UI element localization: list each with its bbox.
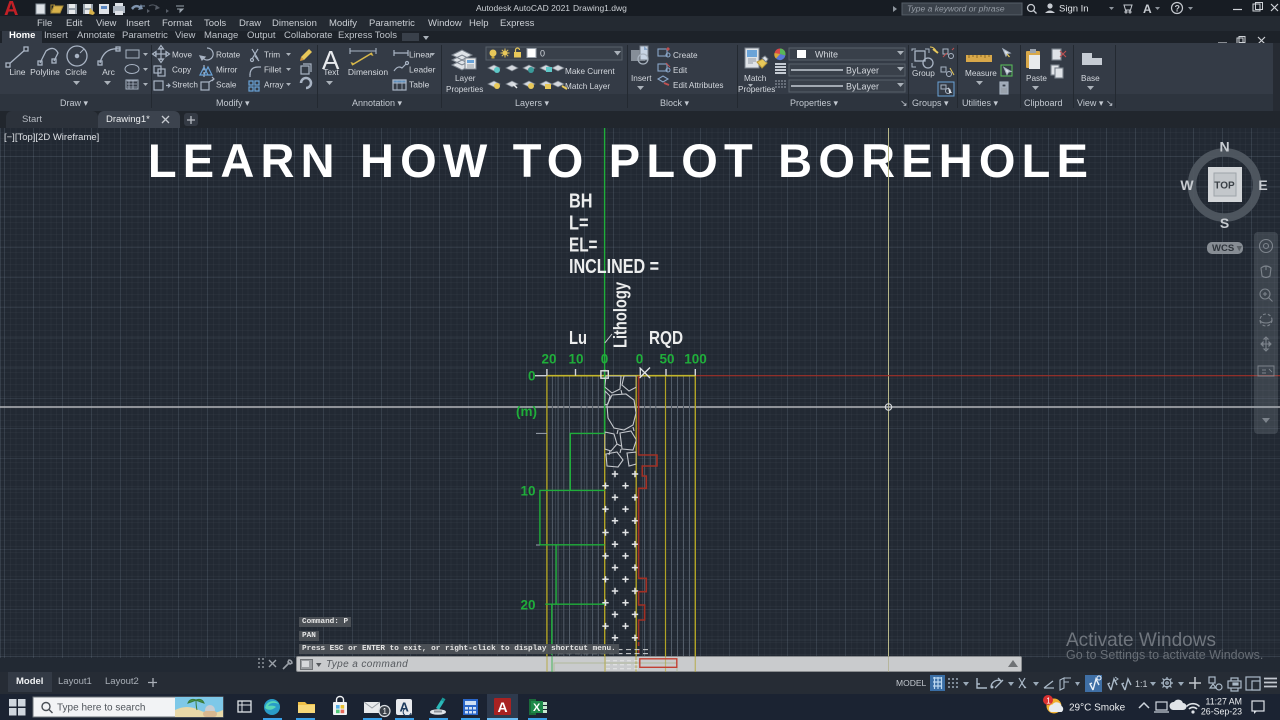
svg-text:ByLayer: ByLayer bbox=[846, 82, 879, 92]
svg-text:Insert: Insert bbox=[631, 74, 652, 83]
svg-text:Edit: Edit bbox=[673, 66, 688, 75]
svg-text:Move: Move bbox=[172, 51, 192, 60]
svg-text:Create: Create bbox=[673, 51, 698, 60]
svg-text:Copy: Copy bbox=[172, 66, 192, 75]
svg-text:Dimension: Dimension bbox=[348, 67, 388, 77]
svg-text:Base: Base bbox=[1081, 74, 1100, 83]
svg-text:Properties: Properties bbox=[446, 85, 483, 94]
svg-text:Arc: Arc bbox=[102, 67, 116, 77]
svg-text:Match Layer: Match Layer bbox=[565, 82, 610, 91]
svg-text:1: 1 bbox=[383, 707, 388, 716]
svg-text:Text: Text bbox=[323, 67, 339, 77]
svg-text:Rotate: Rotate bbox=[216, 51, 241, 60]
svg-text:Autodesk AutoCAD 2021: Autodesk AutoCAD 2021 bbox=[476, 3, 570, 13]
svg-text:Make Current: Make Current bbox=[565, 67, 615, 76]
svg-text:Paste: Paste bbox=[1026, 74, 1047, 83]
svg-text:0: 0 bbox=[540, 49, 545, 59]
svg-text:Trim: Trim bbox=[264, 51, 280, 60]
svg-text:1:1: 1:1 bbox=[1135, 679, 1148, 689]
svg-text:Match: Match bbox=[744, 74, 767, 83]
svg-text:Array: Array bbox=[264, 81, 284, 90]
svg-text:Edit Attributes: Edit Attributes bbox=[673, 81, 724, 90]
svg-text:Line: Line bbox=[9, 67, 25, 77]
svg-text:Scale: Scale bbox=[216, 81, 237, 90]
svg-text:White: White bbox=[815, 50, 838, 60]
svg-text:11:27 AM: 11:27 AM bbox=[1205, 697, 1242, 707]
svg-text:26-Sep-23: 26-Sep-23 bbox=[1201, 707, 1242, 717]
svg-text:Layer: Layer bbox=[455, 74, 476, 83]
svg-text:Circle: Circle bbox=[65, 67, 87, 77]
svg-text:Properties: Properties bbox=[738, 85, 775, 94]
svg-text:1: 1 bbox=[1046, 697, 1051, 706]
svg-text:Group: Group bbox=[912, 69, 935, 78]
svg-text:Leader: Leader bbox=[409, 65, 436, 75]
svg-text:Type a keyword or phrase: Type a keyword or phrase bbox=[907, 4, 1005, 14]
svg-text:Drawing1.dwg: Drawing1.dwg bbox=[573, 3, 627, 13]
svg-text:Mirror: Mirror bbox=[216, 66, 238, 75]
svg-text:Polyline: Polyline bbox=[30, 67, 60, 77]
svg-text:ByLayer: ByLayer bbox=[846, 66, 879, 76]
svg-text:Stretch: Stretch bbox=[172, 81, 198, 90]
svg-text:X: X bbox=[533, 702, 541, 714]
svg-text:A: A bbox=[4, 0, 18, 16]
svg-text:A: A bbox=[400, 700, 410, 715]
svg-text:Type here to search: Type here to search bbox=[57, 703, 145, 714]
svg-text:A: A bbox=[498, 699, 508, 715]
svg-text:Fillet: Fillet bbox=[264, 66, 282, 75]
svg-text:Table: Table bbox=[409, 80, 430, 90]
svg-text:29°C Smoke: 29°C Smoke bbox=[1069, 703, 1126, 714]
svg-text:A: A bbox=[1143, 2, 1152, 16]
svg-text:Measure: Measure bbox=[965, 69, 997, 78]
svg-text:Linear: Linear bbox=[409, 50, 433, 60]
svg-text:Sign In: Sign In bbox=[1059, 4, 1089, 15]
svg-text:?: ? bbox=[1175, 4, 1181, 14]
